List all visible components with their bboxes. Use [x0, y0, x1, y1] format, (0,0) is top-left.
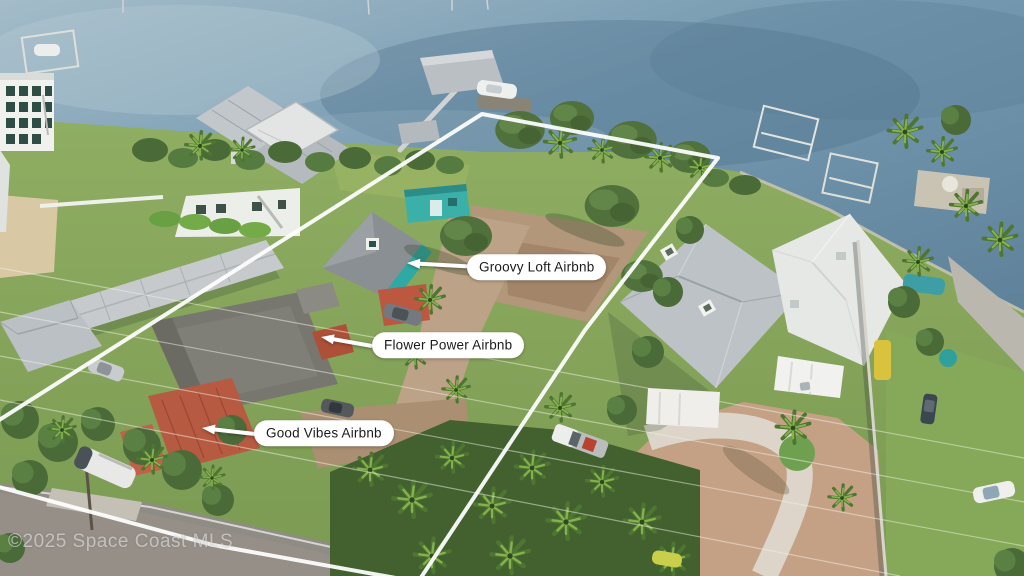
label-good-vibes-airbnb: Good Vibes Airbnb	[254, 420, 394, 446]
yellow-kayaks	[874, 340, 891, 380]
sand-patch	[0, 195, 58, 278]
right-lawn	[886, 330, 1024, 576]
aerial-scene	[0, 0, 1024, 576]
watermark: ©2025 Space Coast MLS	[8, 531, 233, 553]
teal-umbrella	[939, 349, 957, 367]
palm-island-turf	[779, 435, 815, 471]
shore-canopy	[398, 120, 440, 144]
label-groovy-loft-airbnb: Groovy Loft Airbnb	[467, 254, 606, 280]
label-flower-power-airbnb: Flower Power Airbnb	[372, 332, 524, 358]
aerial-photo: Groovy Loft Airbnb Flower Power Airbnb G…	[0, 0, 1024, 576]
